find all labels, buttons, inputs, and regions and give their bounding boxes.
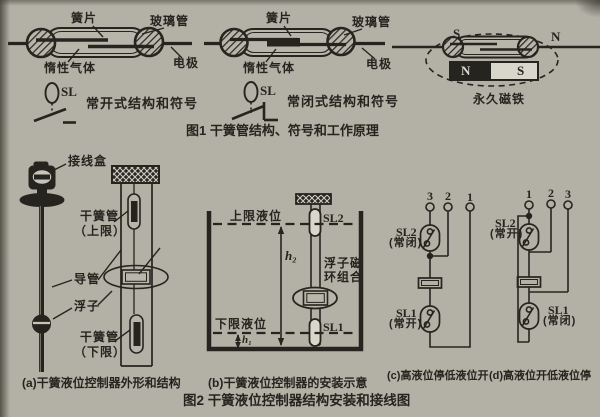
label-float-ring-line2: 环组合 bbox=[324, 271, 363, 284]
terminal bbox=[466, 203, 474, 211]
caption-b: (b)干簧液位控制器的安装示意 bbox=[208, 377, 367, 390]
wiring-diagram-c bbox=[419, 203, 475, 347]
terminal bbox=[426, 203, 434, 211]
leader-line bbox=[98, 291, 112, 305]
figure1-caption: 图1 干簧管结构、符号和工作原理 bbox=[186, 124, 379, 138]
label-glass-tube: 玻璃管 bbox=[352, 16, 391, 29]
caption-a: (a)干簧液位控制器外形和结构 bbox=[22, 377, 181, 390]
scan-edge-shadow bbox=[574, 0, 600, 18]
label-magnet-s: S bbox=[517, 64, 524, 78]
label-reed-upper: 干簧管 bbox=[80, 210, 119, 223]
leader-line bbox=[98, 250, 121, 280]
label-guide-tube: 导管 bbox=[74, 273, 100, 286]
label-glass-tube: 玻璃管 bbox=[150, 15, 189, 28]
label-lower-level: 下限液位 bbox=[215, 318, 267, 331]
caption-normally-open: 常开式结构和符号 bbox=[86, 97, 198, 111]
caption-d: (d)高液位开低液位停 bbox=[489, 371, 591, 383]
label-sl-symbol: SL bbox=[260, 84, 276, 98]
terminal-number: 3 bbox=[427, 190, 433, 203]
reed-switch-with-magnet bbox=[392, 34, 600, 86]
scan-edge-shadow bbox=[0, 0, 10, 417]
cap-crosshatched bbox=[296, 194, 331, 204]
leader-line bbox=[53, 308, 72, 319]
caption-c: (c)高液位停低液位开 bbox=[387, 371, 488, 383]
label-electrode: 电极 bbox=[173, 57, 199, 70]
label-pole-s-near: S bbox=[453, 27, 460, 41]
label-upper-level: 上限液位 bbox=[230, 210, 282, 223]
terminal-number: 3 bbox=[565, 188, 571, 201]
sl2-capsule bbox=[310, 209, 321, 236]
terminal bbox=[525, 201, 533, 209]
terminal-number: 1 bbox=[467, 191, 473, 204]
leader-line bbox=[52, 280, 72, 287]
label-sl1-state: (常开) bbox=[389, 319, 422, 331]
label-reed-blade: 簧片 bbox=[266, 12, 292, 25]
hatched-end-cap bbox=[328, 28, 355, 55]
label-sl1-state: (常闭) bbox=[543, 316, 576, 328]
reed-switch-normally-open bbox=[8, 26, 192, 62]
reed-switch-normally-closed bbox=[204, 26, 385, 62]
magnet-ring bbox=[122, 270, 150, 284]
label-float-ring-line1: 浮子磁 bbox=[324, 257, 363, 270]
label-h2: h₂ bbox=[285, 249, 297, 263]
junction-dot bbox=[428, 254, 433, 259]
label-junction-box: 接线盒 bbox=[68, 155, 107, 168]
terminal-number: 2 bbox=[445, 190, 451, 203]
label-electrode: 电极 bbox=[366, 58, 392, 71]
closed-contact-overlap bbox=[267, 38, 300, 47]
label-h1: h₁ bbox=[242, 335, 252, 347]
label-reed-lower: 干簧管 bbox=[80, 331, 119, 344]
label-magnet-n: N bbox=[461, 64, 470, 78]
label-pole-n-near: N bbox=[551, 30, 560, 44]
hatched-end-cap bbox=[518, 37, 538, 57]
label-sl1: SL1 bbox=[323, 321, 344, 334]
label-inert-gas: 惰性气体 bbox=[243, 62, 295, 75]
label-float: 浮子 bbox=[74, 300, 100, 313]
scan-edge-shadow bbox=[0, 0, 600, 6]
label-reed-blade: 簧片 bbox=[71, 12, 97, 25]
label-sl2-state: (常开) bbox=[490, 229, 523, 241]
hatched-end-cap bbox=[221, 29, 248, 56]
cap-crosshatched bbox=[112, 166, 159, 183]
scanned-figure-page: 簧片 玻璃管 惰性气体 电极 SL 常开式结构和符号 簧片 玻璃管 惰性气体 电… bbox=[0, 0, 600, 417]
label-reed-upper-limit: （上限） bbox=[74, 225, 126, 238]
hatched-end-cap bbox=[27, 29, 55, 57]
label-sl-symbol: SL bbox=[61, 85, 77, 99]
label-permanent-magnet: 永久磁铁 bbox=[473, 93, 525, 106]
probe-rod bbox=[39, 206, 44, 372]
terminal bbox=[444, 203, 452, 211]
terminal bbox=[547, 200, 555, 208]
figure2-caption: 图2 干簧液位控制器结构安装和接线图 bbox=[183, 394, 410, 408]
label-sl2-state: (常闭) bbox=[389, 238, 422, 250]
switch-contact-arm bbox=[232, 106, 264, 119]
terminal-number: 1 bbox=[526, 188, 532, 201]
caption-normally-closed: 常闭式结构和符号 bbox=[287, 95, 399, 109]
glass-tube-outline bbox=[46, 28, 146, 57]
terminal bbox=[564, 201, 572, 209]
switch-contact-arm bbox=[34, 109, 66, 121]
mounting-flange bbox=[20, 194, 64, 207]
label-reed-lower-limit: （下限） bbox=[74, 346, 126, 359]
label-inert-gas: 惰性气体 bbox=[44, 62, 96, 75]
terminal-number: 2 bbox=[548, 187, 554, 200]
label-sl2: SL2 bbox=[323, 212, 344, 225]
